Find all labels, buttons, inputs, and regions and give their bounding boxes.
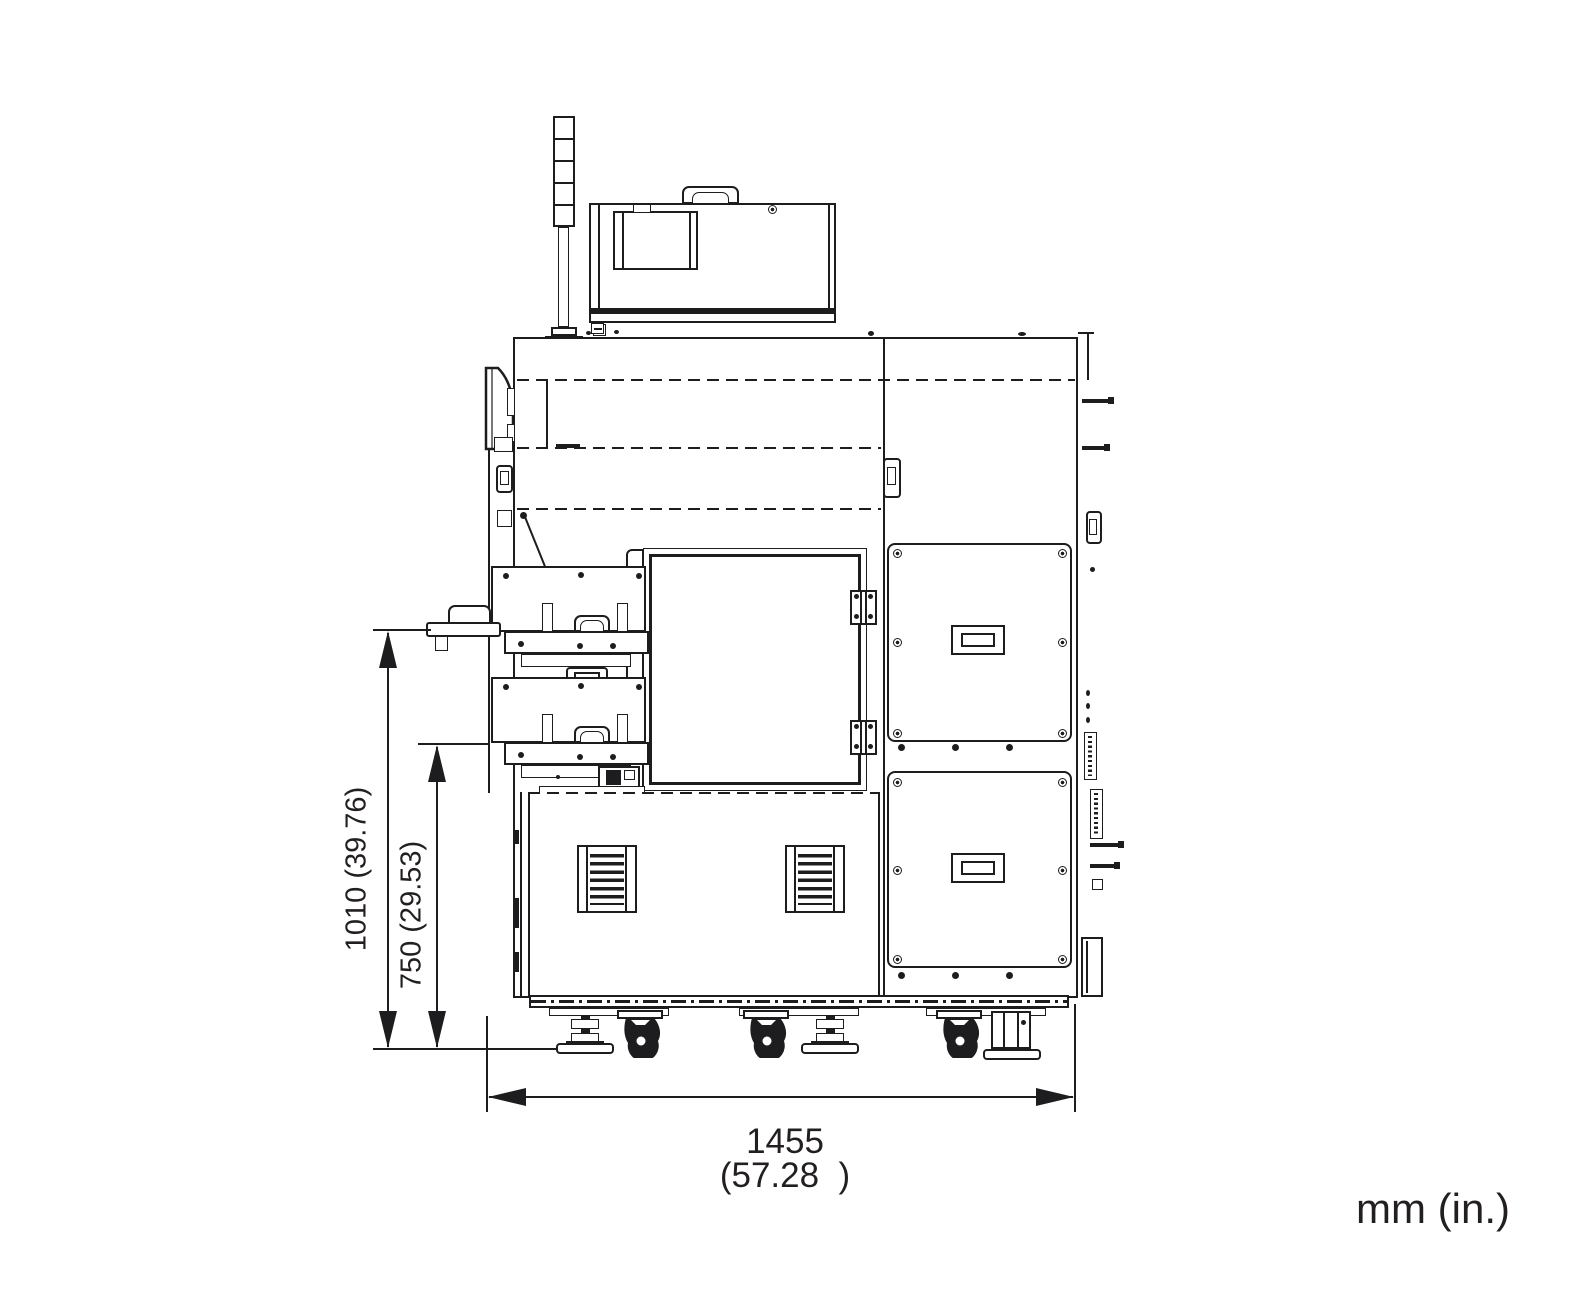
- dimension-height-750-label: 750 (29.53): [396, 841, 429, 989]
- dimension-line-height-750: [436, 747, 438, 1047]
- bracket-slot-line: [1003, 1013, 1005, 1047]
- bolt-dot: [898, 972, 905, 979]
- fitting-dot: [1086, 703, 1090, 709]
- tray-post: [542, 714, 553, 743]
- side-stub: [1092, 879, 1103, 890]
- screw-dot: [518, 752, 524, 758]
- panel-screw: [1058, 549, 1067, 558]
- side-rod: [1090, 864, 1116, 868]
- hinge-pin-line: [865, 592, 867, 623]
- hinge-screw: [868, 744, 873, 749]
- leveler-pad: [801, 1043, 859, 1054]
- caster-wheel: [615, 1010, 665, 1058]
- tray-step: [521, 654, 631, 667]
- housing-base-strip: [589, 312, 836, 323]
- screw-dot: [578, 572, 584, 578]
- left-latch-keeper: [500, 471, 509, 485]
- hinge-screw: [854, 614, 859, 619]
- hinge-pin-line: [860, 592, 862, 623]
- side-latch-keeper: [1089, 519, 1097, 535]
- arrowhead-up-icon: [428, 745, 446, 782]
- hinge-screw: [854, 744, 859, 749]
- screw-dot: [577, 754, 583, 760]
- caster-wheel: [741, 1010, 791, 1058]
- caster-wheel: [934, 1010, 984, 1058]
- panel-screw: [893, 638, 902, 647]
- tower-base-plate: [545, 336, 583, 339]
- hinge-screw: [854, 594, 859, 599]
- hinge-pin-line: [860, 722, 862, 753]
- hinge-screw: [854, 724, 859, 729]
- side-rod-tip: [1114, 862, 1120, 869]
- tower-segment-line: [555, 138, 573, 140]
- hinge-screw: [868, 614, 873, 619]
- tray-post: [542, 603, 553, 632]
- screw-dot: [518, 641, 524, 647]
- leveler-pad: [556, 1043, 614, 1054]
- tower-segment-line: [555, 182, 573, 184]
- vent-rail-line: [586, 847, 588, 911]
- panel-screw: [1058, 729, 1067, 738]
- tray-post: [617, 603, 628, 632]
- bolt-dot: [898, 744, 905, 751]
- door-panel: [649, 554, 861, 785]
- screw-dot: [577, 643, 583, 649]
- screw-dot: [503, 573, 509, 579]
- mechanism-tab: [624, 770, 635, 780]
- housing-screw: [768, 205, 777, 214]
- panel-screw: [893, 549, 902, 558]
- arrowhead-left-icon: [488, 1088, 526, 1106]
- screw-dot: [520, 512, 527, 519]
- housing-base-line: [591, 308, 834, 310]
- screw-dot: [503, 684, 509, 690]
- dimension-height-1010-label: 1010 (39.76): [341, 787, 374, 951]
- arrowhead-up-icon: [379, 631, 397, 668]
- panel-handle-recess: [961, 861, 995, 875]
- vent-slats: [590, 854, 624, 905]
- top-fitting-dot: [868, 331, 874, 336]
- side-stub: [494, 437, 513, 452]
- screw-dot: [610, 754, 616, 760]
- side-rod-tip: [1118, 841, 1124, 848]
- screw-dot: [610, 643, 616, 649]
- side-rod: [1082, 446, 1106, 450]
- tower-base: [551, 327, 577, 336]
- side-arm-leg: [435, 636, 448, 651]
- tower-segment-line: [555, 204, 573, 206]
- panel-left-tick: [515, 898, 519, 928]
- tray-bar: [504, 631, 649, 654]
- bracket-slot-line: [1017, 1013, 1019, 1047]
- arrowhead-down-icon: [379, 1011, 397, 1048]
- bolt-dot: [1006, 744, 1013, 751]
- mechanism-block: [606, 770, 621, 785]
- side-rod: [1090, 843, 1120, 847]
- panel-screw: [1058, 866, 1067, 875]
- hinge-screw: [868, 724, 873, 729]
- panel-screw: [1058, 778, 1067, 787]
- divider-latch-keeper: [887, 467, 896, 485]
- leveler-pad: [983, 1049, 1041, 1060]
- hidden-line-top: [517, 379, 1075, 381]
- vent-rail-line: [794, 847, 796, 911]
- fitting-dot: [1086, 690, 1090, 696]
- vent-slats: [798, 854, 832, 905]
- panel-handle-recess: [961, 633, 995, 647]
- side-rod-tip: [1104, 444, 1110, 451]
- tray-post: [617, 714, 628, 743]
- screw-dot: [556, 775, 560, 779]
- screw-dot: [636, 684, 642, 690]
- panel-screw: [1058, 955, 1067, 964]
- tower-pole: [558, 227, 569, 327]
- side-bracket-line: [1086, 941, 1088, 993]
- housing-foot-line: [594, 328, 602, 330]
- fitting-dot: [1090, 567, 1095, 572]
- housing-edge-line: [828, 205, 830, 310]
- panel-left-line: [520, 792, 522, 998]
- terminal-pins: [1094, 793, 1098, 835]
- side-tab: [507, 388, 515, 416]
- fitting-dot: [1086, 717, 1090, 723]
- hidden-line-panel-top: [528, 792, 880, 794]
- vent-rail-line: [833, 847, 835, 911]
- monitor-bezel-line: [689, 213, 691, 268]
- panel-screw: [893, 955, 902, 964]
- hinge-pin-line: [865, 722, 867, 753]
- monitor-bezel-line: [622, 213, 624, 268]
- bolt-dot: [1006, 972, 1013, 979]
- side-rod: [1082, 399, 1110, 403]
- dimension-width-in-label: (57.28 ): [720, 1156, 850, 1196]
- side-bracket: [1081, 937, 1103, 997]
- screw-dot: [636, 573, 642, 579]
- leveler-nut: [816, 1019, 844, 1029]
- panel-screw: [1058, 638, 1067, 647]
- top-fitting-dot: [1018, 332, 1026, 336]
- hinge-screw: [868, 594, 873, 599]
- hidden-line-mid2: [517, 508, 881, 510]
- units-note-label: mm (in.): [1356, 1185, 1510, 1233]
- signal-tower-body: [553, 116, 575, 227]
- center-line: [531, 1000, 1067, 1003]
- dimension-line-height-1010: [387, 633, 389, 1047]
- panel-left-tick: [515, 952, 519, 972]
- monitor-panel: [613, 211, 698, 270]
- monitor-clip: [633, 204, 651, 213]
- top-right-edge: [1087, 334, 1089, 380]
- band-edge-line: [546, 381, 548, 447]
- arrowhead-right-icon: [1036, 1088, 1074, 1106]
- top-right-cap: [1078, 332, 1094, 334]
- drawing-canvas: 1010 (39.76) 750 (29.53) 1455 (57.28 ) m…: [0, 0, 1576, 1301]
- side-arm-plate: [426, 622, 501, 637]
- dimension-line-width-1455: [489, 1096, 1073, 1098]
- left-small-box: [497, 510, 512, 527]
- bracket-dot: [1021, 1020, 1026, 1025]
- bolt-dot: [952, 972, 959, 979]
- leveler-nut: [571, 1019, 599, 1029]
- tower-segment-line: [555, 160, 573, 162]
- panel-screw: [893, 778, 902, 787]
- bolt-dot: [952, 744, 959, 751]
- screw-dot: [578, 683, 584, 689]
- vent-rail-line: [625, 847, 627, 911]
- housing-foot-dot: [614, 330, 619, 334]
- extension-line: [1074, 1004, 1076, 1112]
- side-rod-tip: [1108, 397, 1114, 404]
- panel-screw: [893, 729, 902, 738]
- terminal-pins: [1088, 736, 1092, 776]
- cabinet-divider-line: [883, 339, 885, 996]
- leveler-bracket: [991, 1011, 1031, 1049]
- extension-line: [373, 1048, 556, 1050]
- panel-screw: [893, 866, 902, 875]
- tab-mark: [556, 444, 580, 448]
- housing-edge-line: [598, 205, 600, 310]
- tray-bar: [504, 742, 649, 765]
- panel-left-tick: [515, 830, 519, 844]
- arrowhead-down-icon: [428, 1011, 446, 1048]
